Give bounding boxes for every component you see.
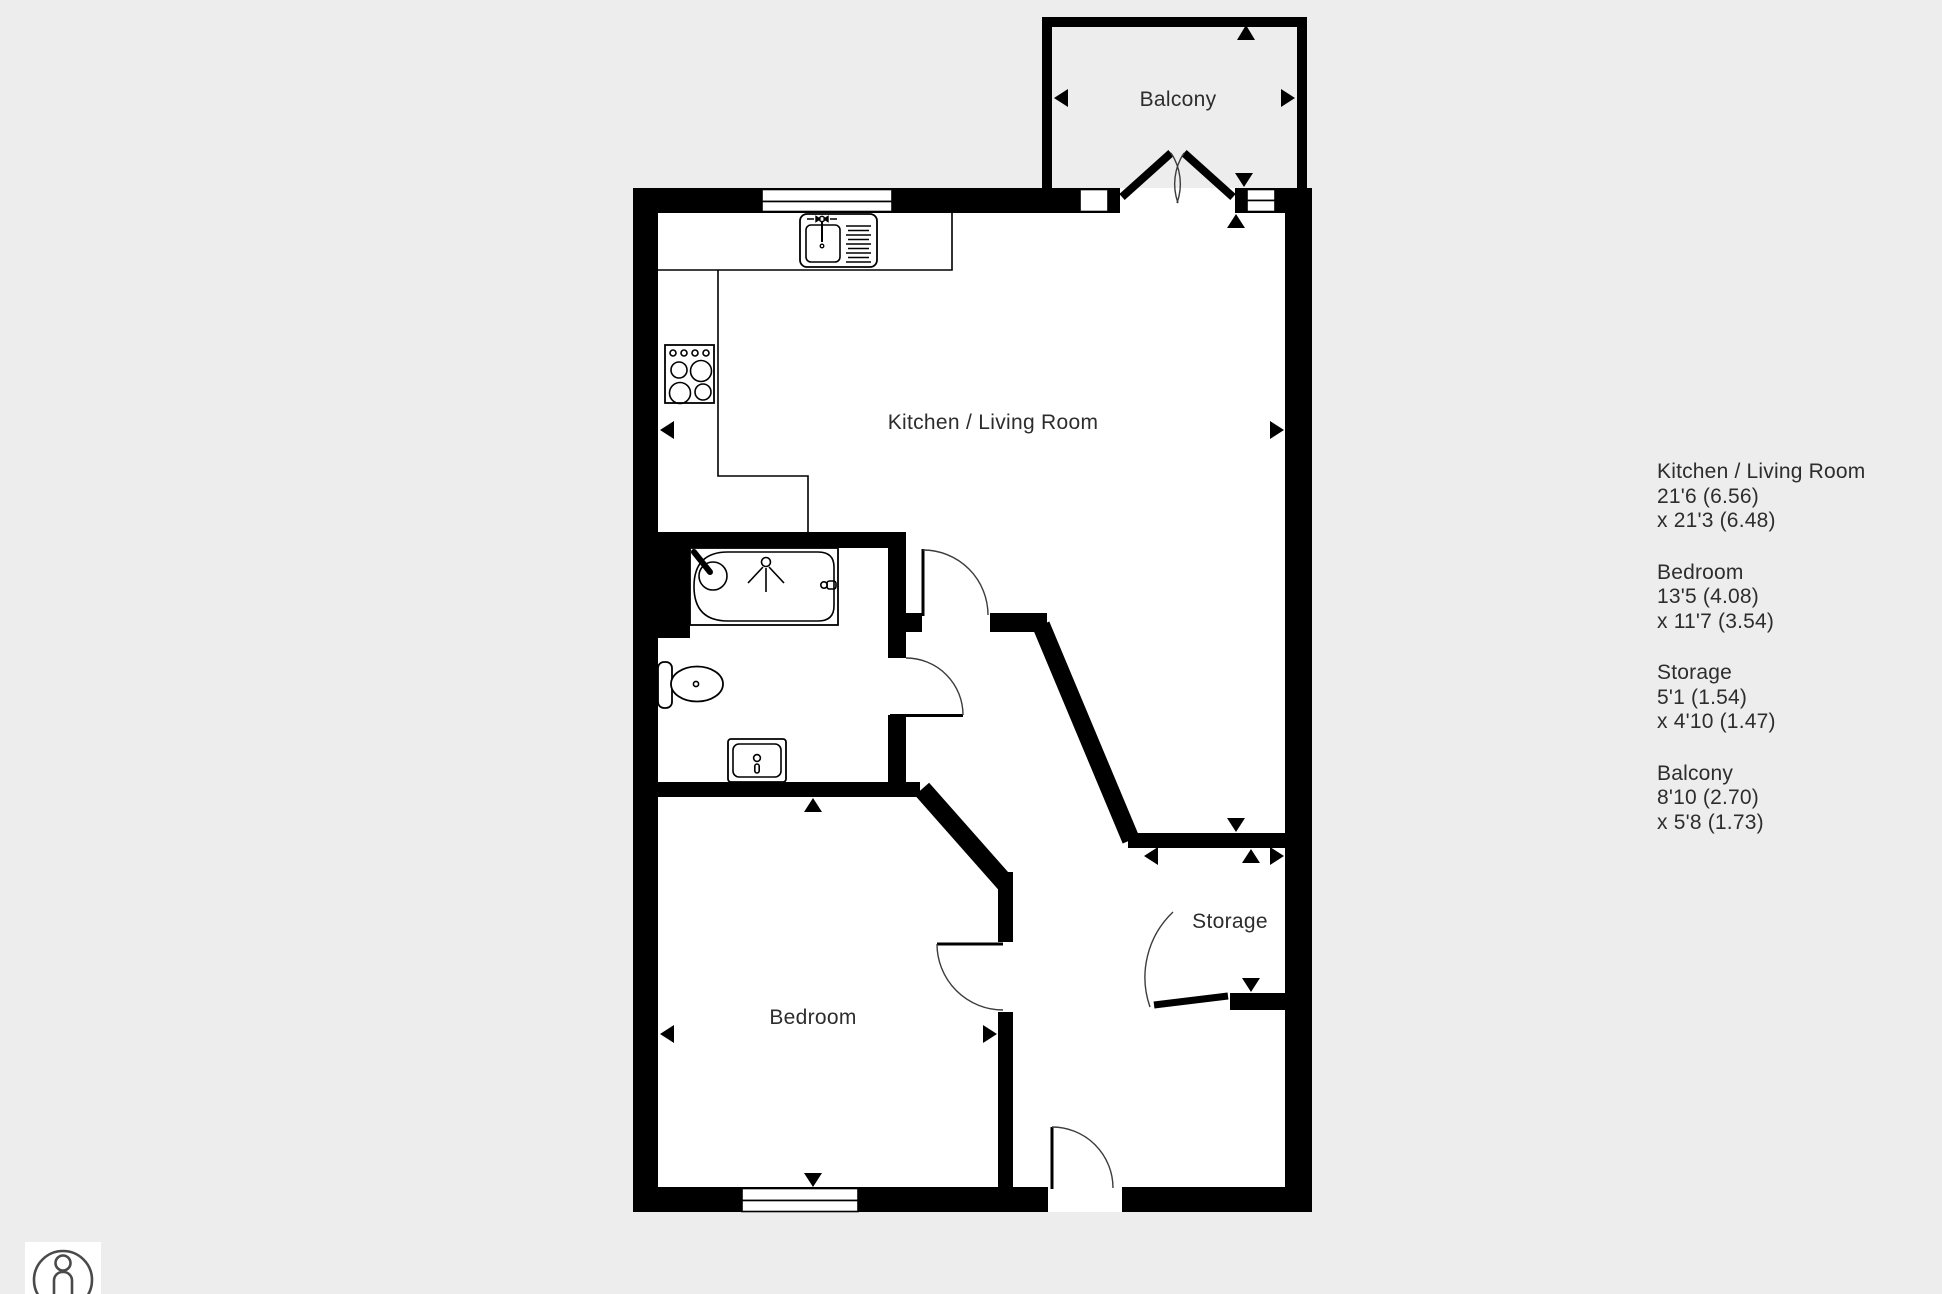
arrow-left-icon [1054,89,1068,107]
legend-item: Storage 5'1 (1.54) x 4'10 (1.47) [1657,661,1865,735]
kitchen-window [762,190,892,212]
legend-dimension: 21'6 (6.56) [1657,485,1865,510]
bathroom-pillar [658,532,690,638]
wall-right [1285,188,1312,1212]
entrance-door-opening [1048,1187,1122,1212]
legend-item: Balcony 8'10 (2.70) x 5'8 (1.73) [1657,762,1865,836]
bedroom-right-wall-lower [998,1012,1013,1187]
floorplan-page: Kitchen / Living Room Bedroom Storage Ba… [0,0,1942,1294]
room-label-kitchen-living: Kitchen / Living Room [888,411,1099,434]
person-head [56,1256,71,1271]
person-view-icon[interactable] [25,1242,101,1294]
legend-dimension: x 5'8 (1.73) [1657,811,1865,836]
arrow-right-icon [1281,89,1295,107]
arrow-down-icon [1235,173,1253,187]
room-label-balcony: Balcony [1140,88,1217,111]
bedroom-top-wall [633,782,920,797]
living-door-jamb [888,613,922,632]
legend-dimension: x 11'7 (3.54) [1657,610,1865,635]
person-body [54,1272,72,1294]
stove-icon [665,345,714,404]
legend-dimension: x 21'3 (6.48) [1657,509,1865,534]
balcony-side-window-right [1247,190,1275,212]
storage-top-wall [1128,833,1285,848]
balcony-side-window-left [1080,190,1108,212]
legend-item: Kitchen / Living Room 21'6 (6.56) x 21'3… [1657,460,1865,534]
bathroom-right-wall-upper [888,532,906,658]
legend-room-name: Kitchen / Living Room [1657,460,1865,485]
room-label-storage: Storage [1192,910,1268,933]
legend-dimension: 13'5 (4.08) [1657,585,1865,610]
basin-icon [728,739,786,782]
wall-bottom [633,1187,1312,1212]
bathroom-top-wall [658,532,906,548]
bath-icon [690,548,838,625]
storage-bottom-wall [1230,993,1285,1010]
room-label-bedroom: Bedroom [769,1006,856,1029]
legend-dimension: x 4'10 (1.47) [1657,710,1865,735]
bedroom-right-wall-upper [998,872,1013,942]
dimensions-legend: Kitchen / Living Room 21'6 (6.56) x 21'3… [1657,460,1865,862]
legend-room-name: Storage [1657,661,1865,686]
legend-dimension: 5'1 (1.54) [1657,686,1865,711]
legend-room-name: Bedroom [1657,561,1865,586]
kitchen-sink-icon [800,214,877,267]
legend-room-name: Balcony [1657,762,1865,787]
legend-dimension: 8'10 (2.70) [1657,786,1865,811]
floor-plan: Kitchen / Living Room Bedroom Storage Ba… [0,0,1942,1294]
legend-item: Bedroom 13'5 (4.08) x 11'7 (3.54) [1657,561,1865,635]
bedroom-window [742,1189,858,1212]
wall-left [633,188,658,1212]
apartment-interior [633,188,1312,1212]
arrow-up-icon [1237,25,1255,40]
